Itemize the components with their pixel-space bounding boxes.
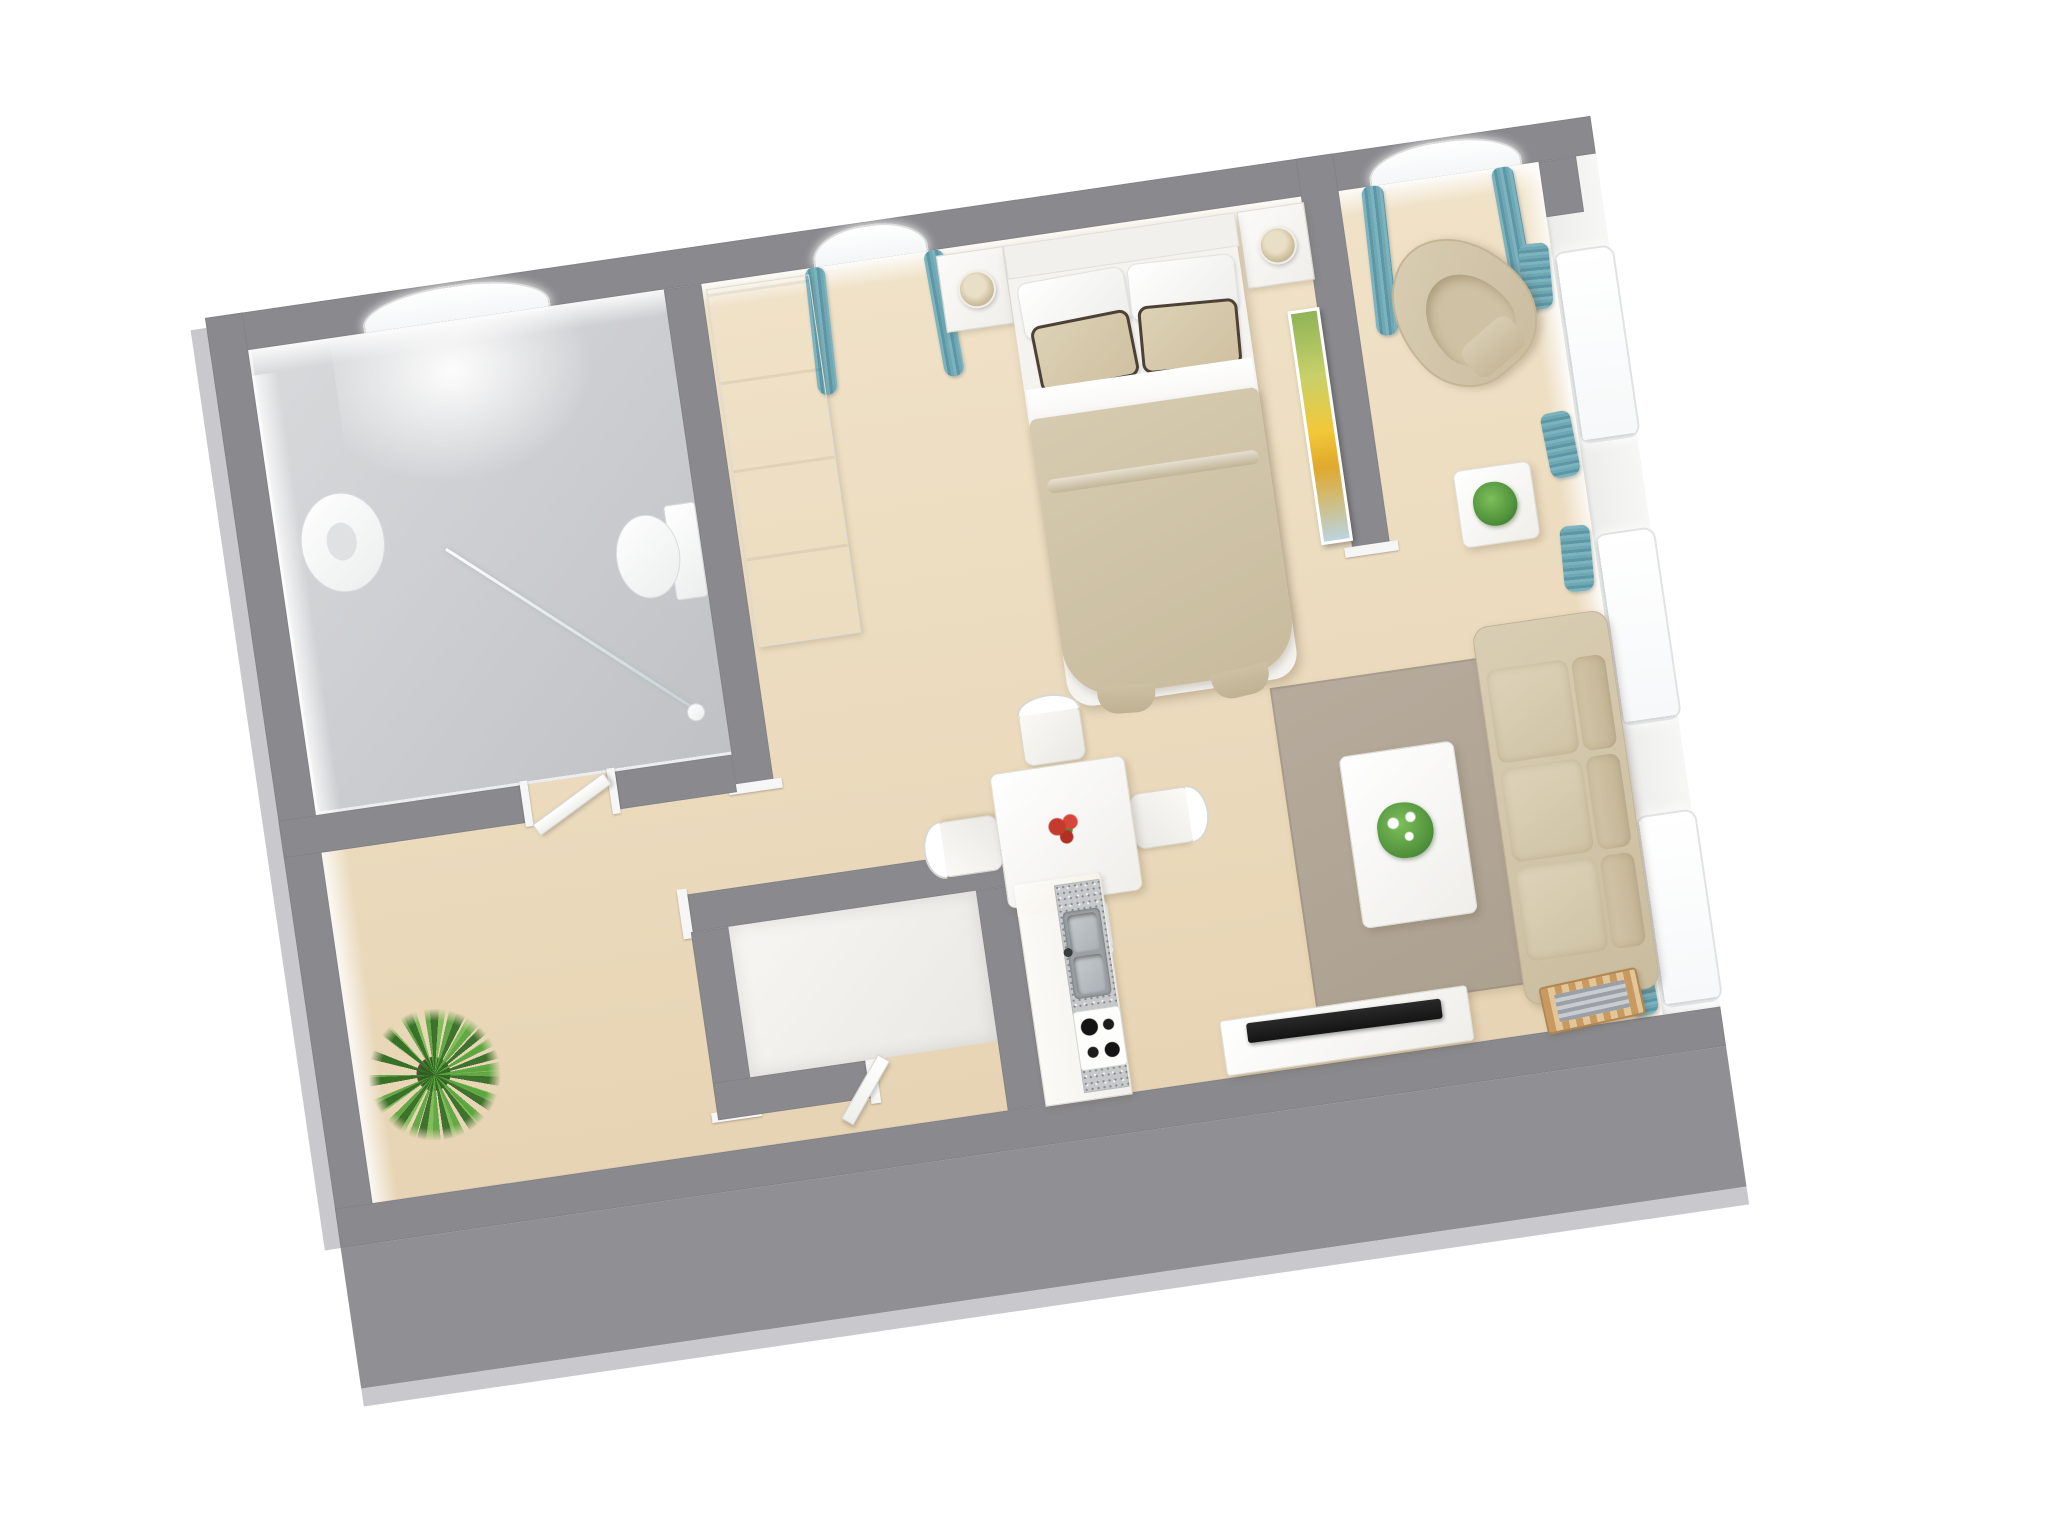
palm-plant xyxy=(360,1000,510,1150)
floorplan-screenshot xyxy=(0,0,2048,1538)
room-hallway xyxy=(205,116,1749,1407)
apartment-plan xyxy=(205,116,1749,1407)
